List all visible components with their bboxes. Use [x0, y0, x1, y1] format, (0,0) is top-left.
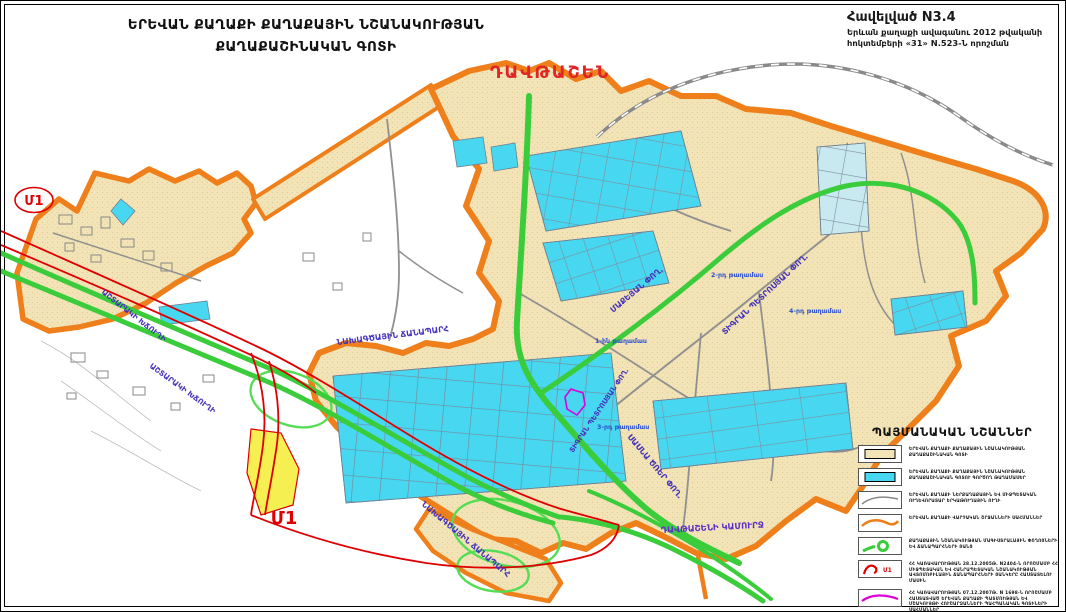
legend-m1-symbol-label: Մ1: [883, 567, 892, 574]
block-label-3: 3-րդ թաղամաս: [597, 424, 649, 431]
zone-connector-band: [253, 85, 445, 219]
m1-badge-bottom: Մ1: [271, 508, 298, 529]
legend-row-main-streets: ՔԱՂԱՔԱՅԻՆ ՆՇԱՆԱԿՈՒԹՅԱՆ ՄԱԳԻՍՏՐԱԼԱՅԻՆ ՓՈՂ…: [858, 537, 1058, 555]
legend-main-street-icon: [858, 537, 902, 555]
sheet-title-line1: ԵՐԵՎԱՆ ՔԱՂԱՔԻ ՔԱՂԱՔԱՅԻՆ ՆՇԱՆԱԿՈՒԹՅԱՆ: [61, 15, 551, 37]
block-cluster-right: [891, 291, 967, 335]
legend-item-text: ԵՐԵՎԱՆ ՔԱՂԱՔԻ ՔԱՂԱՔԱՅԻՆ ՆՇԱՆԱԿՈՒԹՅԱՆ ՔԱՂ…: [909, 445, 1058, 458]
block-label-4: 4-րդ թաղամաս: [789, 308, 841, 315]
block-label-2: 2-րդ թաղամաս: [711, 272, 763, 279]
road-label-ashtarak-highway-2: ԱՇՏԱՐԱԿԻ ԽՃՈՒՂԻ: [148, 361, 218, 415]
legend-panel: ՊԱՅՄԱՆԱԿԱՆ ՆՇԱՆՆԵՐ ԵՐԵՎԱՆ ՔԱՂԱՔԻ ՔԱՂԱՔԱՅ…: [858, 425, 1058, 612]
legend-row-blocks: ԵՐԵՎԱՆ ՔԱՂԱՔԻ ՔԱՂԱՔԱՅԻՆ ՆՇԱՆԱԿՈՒԹՅԱՆ ՔԱՂ…: [858, 468, 1058, 486]
legend-admin-border-icon: [858, 514, 902, 532]
legend-row-zone: ԵՐԵՎԱՆ ՔԱՂԱՔԻ ՔԱՂԱՔԱՅԻՆ ՆՇԱՆԱԿՈՒԹՅԱՆ ՔԱՂ…: [858, 445, 1058, 463]
map-sheet: ԱՇՏԱՐԱԿԻ ԽՃՈՒՂԻ ԱՇՏԱՐԱԿԻ ԽՃՈՒՂԻ ՆԱԽԱԳԾԱՅ…: [0, 0, 1066, 612]
legend-row-m1-roads: Մ1 ՀՀ ԿԱՌԱՎԱՐՈՒԹՅԱՆ 28.12.2005Թ. N2404-Ն…: [858, 560, 1058, 584]
annex-number: Հավելված N3.4: [847, 10, 1047, 25]
sheet-title-line2: ՔԱՂԱՔԱՇԻՆԱԿԱՆ ԳՈՏԻ: [61, 37, 551, 59]
legend-item-text: ՀՀ ԿԱՌԱՎԱՐՈՒԹՅԱՆ 07.12.2007Թ. N 1698-Ն Ո…: [909, 589, 1058, 612]
block-label-1: 1-ին թաղամաս: [595, 338, 647, 345]
annex-decision-line1: Երևան քաղաքի ավագանու 2012 թվականի: [847, 27, 1047, 38]
block-small-top1: [453, 137, 487, 167]
m1-badge-left: Մ1: [24, 194, 43, 209]
legend-row-admin-border: ԵՐԵՎԱՆ ՔԱՂԱՔԻ ՎԱՐՉԱԿԱՆ ՇՐՋԱՆՆԵՐԻ ՍԱՀՄԱՆՆ…: [858, 514, 1058, 532]
district-name-label: ԴԱՎԹԱՇԵՆ: [490, 63, 610, 83]
legend-row-monument-zones: ՀՀ ԿԱՌԱՎԱՐՈՒԹՅԱՆ 07.12.2007Թ. N 1698-Ն Ո…: [858, 589, 1058, 612]
legend-m1-road-icon: Մ1: [858, 560, 902, 578]
legend-zone-swatch: [858, 445, 902, 463]
annex-note: Հավելված N3.4 Երևան քաղաքի ավագանու 2012…: [847, 10, 1047, 49]
legend-row-railway: ԵՐԵՎԱՆ ՔԱՂԱՔԻ ՆԵՐՔԱՂԱՔԱՅԻՆ ԵՎ ՄԻՋՊԵՏԱԿԱՆ…: [858, 491, 1058, 509]
legend-monument-zone-icon: [858, 589, 902, 607]
legend-railway-icon: [858, 491, 902, 509]
terrain-contours: [41, 341, 201, 491]
legend-item-text: ՀՀ ԿԱՌԱՎԱՐՈՒԹՅԱՆ 28.12.2005Թ. N2404-Ն ՈՐ…: [909, 560, 1058, 584]
zone-left-lobe: [17, 169, 256, 331]
legend-title: ՊԱՅՄԱՆԱԿԱՆ ՆՇԱՆՆԵՐ: [872, 425, 1058, 439]
sheet-title: ԵՐԵՎԱՆ ՔԱՂԱՔԻ ՔԱՂԱՔԱՅԻՆ ՆՇԱՆԱԿՈՒԹՅԱՆ ՔԱՂ…: [61, 15, 551, 58]
legend-item-text: ԵՐԵՎԱՆ ՔԱՂԱՔԻ ՎԱՐՉԱԿԱՆ ՇՐՋԱՆՆԵՐԻ ՍԱՀՄԱՆՆ…: [909, 514, 1042, 522]
legend-item-text: ԵՐԵՎԱՆ ՔԱՂԱՔԻ ՆԵՐՔԱՂԱՔԱՅԻՆ ԵՎ ՄԻՋՊԵՏԱԿԱՆ…: [909, 491, 1058, 504]
legend-item-text: ԵՐԵՎԱՆ ՔԱՂԱՔԻ ՔԱՂԱՔԱՅԻՆ ՆՇԱՆԱԿՈՒԹՅԱՆ ՔԱՂ…: [909, 468, 1058, 481]
block-small-top2: [491, 143, 518, 171]
legend-blocks-swatch: [858, 468, 902, 486]
annex-decision-line2: հոկտեմբերի «31» N.523-Ն որոշման: [847, 38, 1047, 49]
legend-item-text: ՔԱՂԱՔԱՅԻՆ ՆՇԱՆԱԿՈՒԹՅԱՆ ՄԱԳԻՍՏՐԱԼԱՅԻՆ ՓՈՂ…: [909, 537, 1058, 550]
